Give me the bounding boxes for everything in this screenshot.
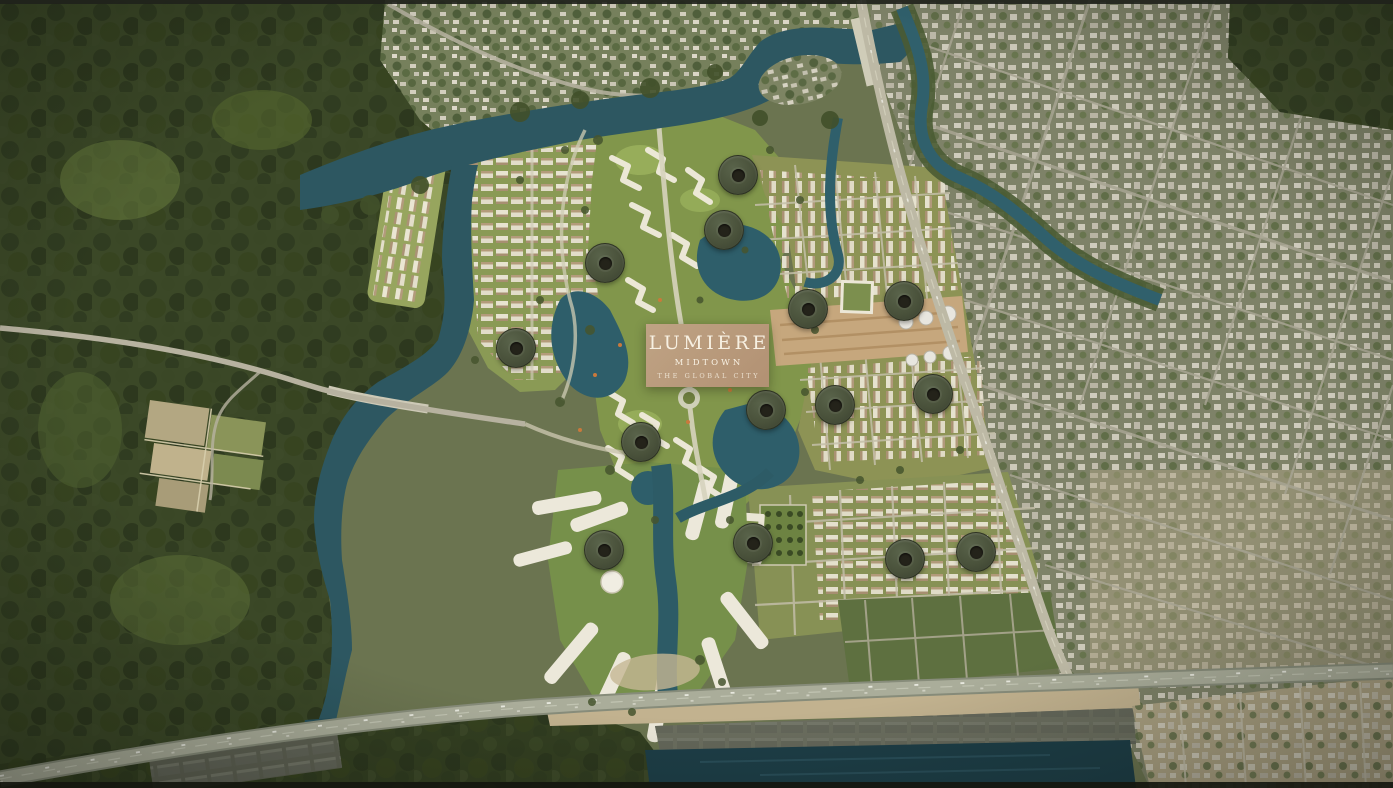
hotspot-center-dot — [899, 553, 912, 566]
hotspot-center-dot — [760, 404, 773, 417]
hotspot-center-dot — [829, 399, 842, 412]
map-hotspot-11[interactable] — [584, 530, 624, 570]
hotspot-center-dot — [898, 295, 911, 308]
hotspot-center-dot — [927, 388, 940, 401]
project-badge: LUMIÈRE MIDTOWN THE GLOBAL CITY — [646, 324, 769, 387]
hotspot-center-dot — [970, 546, 983, 559]
badge-brand-text: LUMIÈRE — [645, 332, 770, 354]
map-hotspot-13[interactable] — [885, 539, 925, 579]
hotspot-center-dot — [747, 537, 760, 550]
map-hotspot-6[interactable] — [884, 281, 924, 321]
map-hotspot-3[interactable] — [585, 243, 625, 283]
hotspot-center-dot — [599, 257, 612, 270]
badge-division-text: MIDTOWN — [672, 358, 744, 368]
hotspot-layer — [0, 0, 1393, 788]
masterplan-viewer: LUMIÈRE MIDTOWN THE GLOBAL CITY — [0, 0, 1393, 788]
map-hotspot-4[interactable] — [496, 328, 536, 368]
map-hotspot-14[interactable] — [956, 532, 996, 572]
map-hotspot-12[interactable] — [733, 523, 773, 563]
hotspot-center-dot — [598, 544, 611, 557]
map-hotspot-10[interactable] — [621, 422, 661, 462]
map-hotspot-8[interactable] — [815, 385, 855, 425]
hotspot-center-dot — [635, 436, 648, 449]
map-hotspot-1[interactable] — [718, 155, 758, 195]
hotspot-center-dot — [510, 342, 523, 355]
map-hotspot-2[interactable] — [704, 210, 744, 250]
map-hotspot-5[interactable] — [788, 289, 828, 329]
map-hotspot-9[interactable] — [913, 374, 953, 414]
hotspot-center-dot — [718, 224, 731, 237]
hotspot-center-dot — [732, 169, 745, 182]
hotspot-center-dot — [802, 303, 815, 316]
badge-tagline-text: THE GLOBAL CITY — [655, 372, 760, 380]
map-hotspot-7[interactable] — [746, 390, 786, 430]
